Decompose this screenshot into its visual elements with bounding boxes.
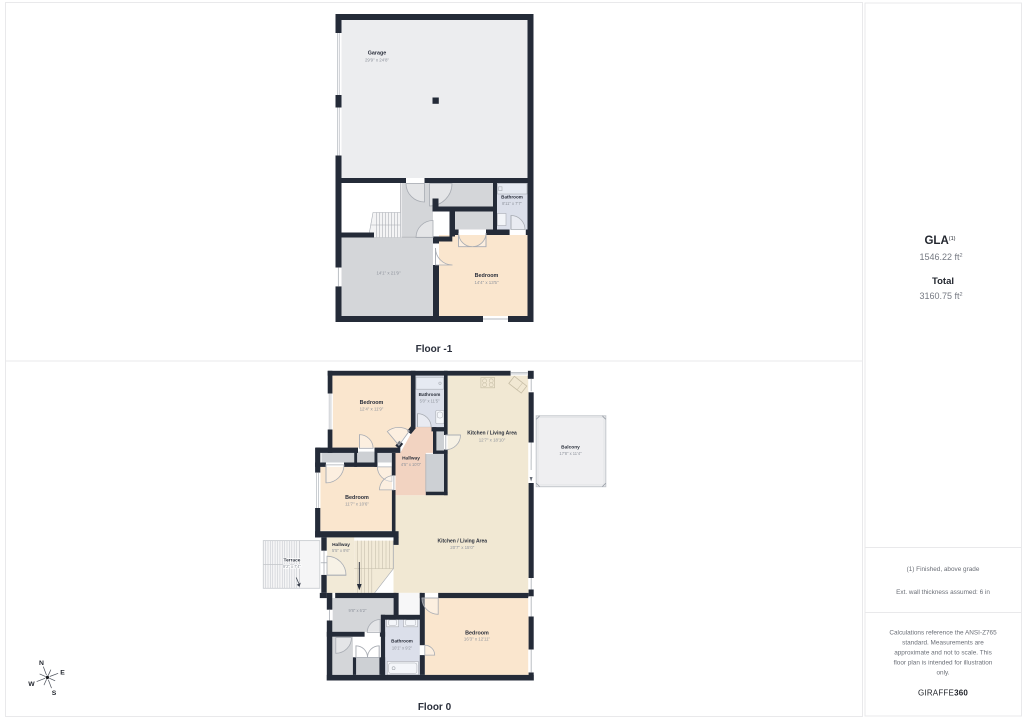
svg-text:5'5" x 9'6": 5'5" x 9'6" <box>332 548 350 553</box>
svg-text:Bedroom: Bedroom <box>465 631 489 637</box>
svg-text:Bathroom: Bathroom <box>501 195 523 200</box>
svg-text:Bathroom: Bathroom <box>419 392 441 397</box>
svg-text:(1) Finished, above grade: (1) Finished, above grade <box>907 566 980 573</box>
svg-text:12'7" x 18'10": 12'7" x 18'10" <box>479 438 506 443</box>
svg-text:standard. Measurements are: standard. Measurements are <box>902 640 984 647</box>
svg-text:Terrace: Terrace <box>284 558 301 564</box>
svg-text:Hallway: Hallway <box>332 542 350 548</box>
svg-text:E: E <box>60 670 65 677</box>
svg-text:11'7" x 10'6": 11'7" x 10'6" <box>345 501 369 506</box>
svg-text:floor plan is intended for ill: floor plan is intended for illustration <box>894 660 993 667</box>
svg-text:14'4" x 13'5": 14'4" x 13'5" <box>474 280 499 285</box>
svg-text:Kitchen / Living Area: Kitchen / Living Area <box>438 539 488 545</box>
svg-text:4'5" x 10'0": 4'5" x 10'0" <box>401 462 422 467</box>
svg-text:GIRAFFE360: GIRAFFE360 <box>918 689 968 698</box>
svg-text:Bedroom: Bedroom <box>475 273 499 279</box>
svg-text:Garage: Garage <box>368 51 387 57</box>
svg-text:Calculations reference the ANS: Calculations reference the ANSI-Z765 <box>889 630 997 637</box>
svg-text:17'8" x 11'4": 17'8" x 11'4" <box>559 451 582 456</box>
svg-text:Ext. wall thickness assumed: 6: Ext. wall thickness assumed: 6 in <box>896 589 990 596</box>
svg-text:Floor 0: Floor 0 <box>418 702 452 713</box>
svg-text:N: N <box>39 660 44 667</box>
svg-text:approximate and not to scale.: approximate and not to scale. This <box>894 650 992 657</box>
svg-text:29'9" x 24'8": 29'9" x 24'8" <box>365 57 390 62</box>
svg-text:Floor -1: Floor -1 <box>416 344 453 355</box>
svg-text:Balcony: Balcony <box>561 445 580 451</box>
svg-text:14'1" x 21'9": 14'1" x 21'9" <box>376 271 401 276</box>
svg-text:8'11" x 7'7": 8'11" x 7'7" <box>502 201 522 206</box>
svg-text:3160.75 ft2: 3160.75 ft2 <box>919 291 962 301</box>
svg-text:Bathroom: Bathroom <box>391 639 413 644</box>
svg-text:10'1" x 9'2": 10'1" x 9'2" <box>392 646 413 651</box>
svg-text:S: S <box>52 690 57 697</box>
svg-text:12'4" x 11'9": 12'4" x 11'9" <box>360 406 384 411</box>
svg-text:16'3" x 12'11": 16'3" x 12'11" <box>464 637 491 642</box>
svg-text:1546.22 ft2: 1546.22 ft2 <box>919 252 962 262</box>
svg-text:5'0" x 11'5": 5'0" x 11'5" <box>420 399 440 404</box>
svg-text:9'2" x 7'4": 9'2" x 7'4" <box>283 564 301 569</box>
svg-text:20'7" x 15'0": 20'7" x 15'0" <box>450 545 475 550</box>
svg-text:9'8" x 6'2": 9'8" x 6'2" <box>349 608 367 613</box>
svg-text:Bedroom: Bedroom <box>345 495 369 501</box>
svg-text:Kitchen / Living Area: Kitchen / Living Area <box>467 431 517 437</box>
svg-text:Total: Total <box>932 276 954 287</box>
svg-text:only.: only. <box>936 670 949 677</box>
svg-text:Bedroom: Bedroom <box>360 400 384 406</box>
svg-text:Hallway: Hallway <box>402 455 420 461</box>
svg-text:W: W <box>28 681 35 688</box>
